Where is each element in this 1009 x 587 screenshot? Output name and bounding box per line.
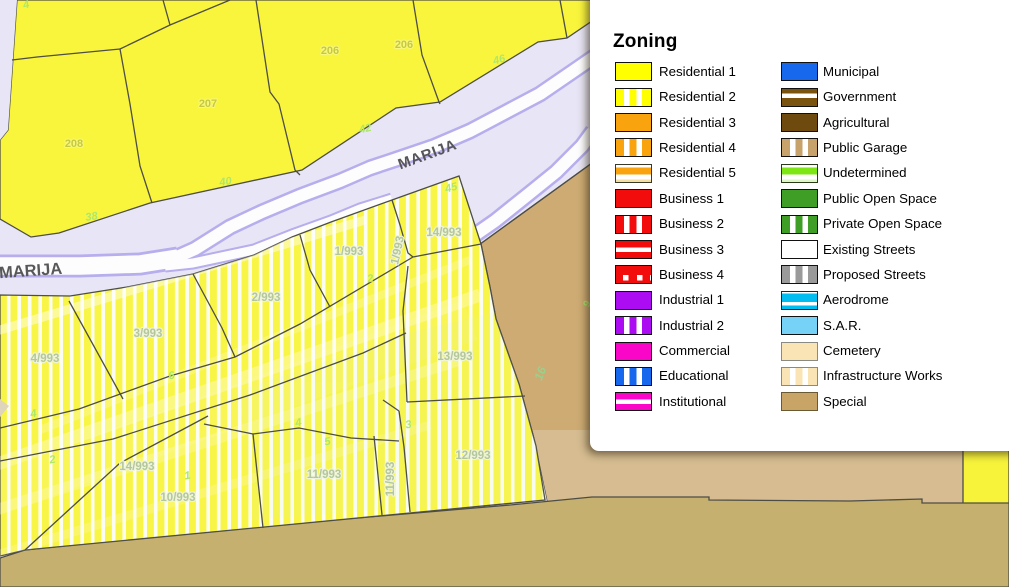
svg-text:206: 206	[321, 45, 339, 57]
svg-text:14/993: 14/993	[119, 461, 154, 473]
svg-text:14/993: 14/993	[426, 227, 461, 239]
svg-text:40: 40	[218, 175, 234, 189]
svg-text:4/993: 4/993	[31, 353, 60, 365]
svg-text:2/993: 2/993	[252, 292, 281, 304]
svg-text:206: 206	[395, 39, 413, 51]
svg-text:11/993: 11/993	[385, 462, 397, 497]
svg-text:11/993: 11/993	[307, 469, 342, 481]
svg-text:10/993: 10/993	[160, 492, 195, 504]
svg-text:13/993: 13/993	[437, 351, 472, 363]
svg-text:207: 207	[199, 98, 217, 110]
svg-text:3/993: 3/993	[134, 328, 163, 340]
svg-text:208: 208	[65, 138, 83, 150]
svg-text:12/993: 12/993	[455, 450, 490, 462]
svg-text:1/993: 1/993	[335, 246, 364, 258]
